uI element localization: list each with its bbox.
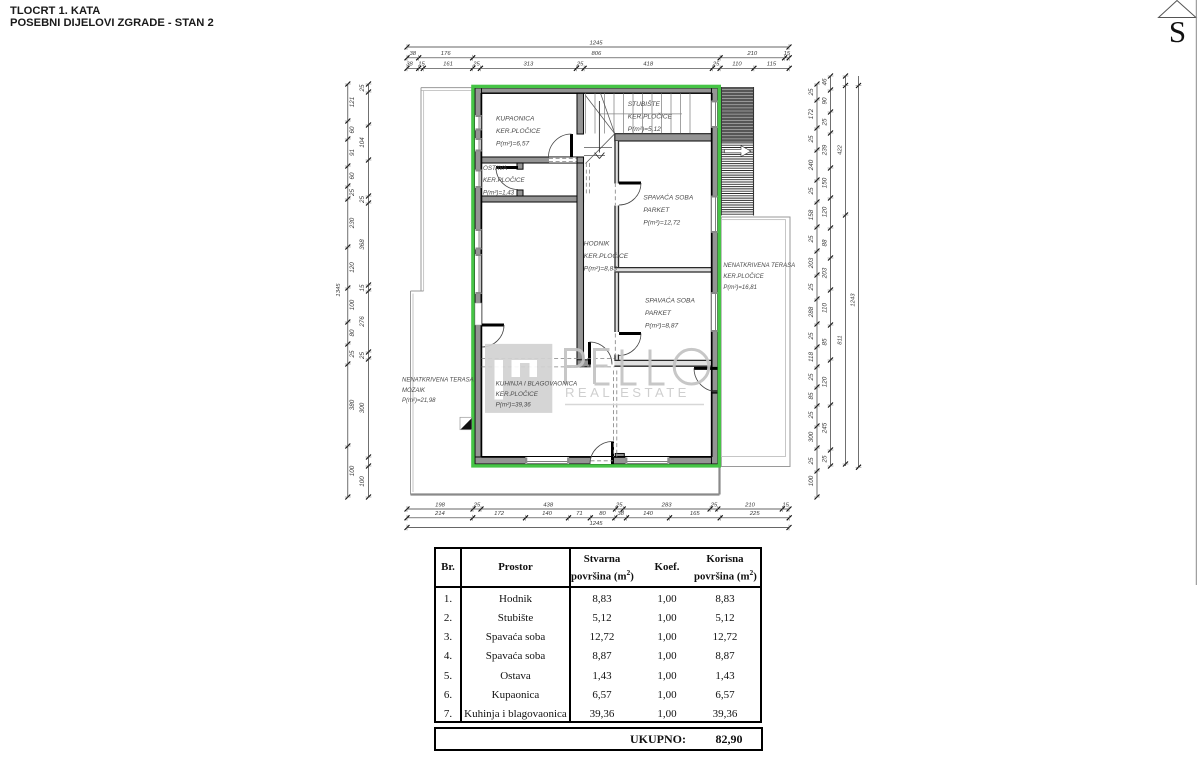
svg-text:172: 172 <box>494 511 505 517</box>
svg-text:176: 176 <box>441 51 452 57</box>
svg-text:91: 91 <box>349 149 356 156</box>
svg-text:85: 85 <box>808 392 815 400</box>
svg-text:25: 25 <box>808 235 815 244</box>
svg-text:110: 110 <box>732 62 742 68</box>
svg-text:25: 25 <box>576 62 584 68</box>
svg-text:438: 438 <box>543 502 554 508</box>
svg-text:276: 276 <box>359 316 366 328</box>
svg-text:15: 15 <box>782 502 789 508</box>
svg-text:25: 25 <box>349 189 356 198</box>
svg-text:25: 25 <box>359 352 366 361</box>
svg-text:15: 15 <box>418 62 425 68</box>
svg-text:88: 88 <box>822 239 829 247</box>
svg-text:283: 283 <box>661 502 673 508</box>
svg-text:165: 165 <box>690 511 701 517</box>
svg-text:P(m²)=5,12: P(m²)=5,12 <box>628 126 661 133</box>
svg-text:380: 380 <box>349 399 356 410</box>
svg-text:80: 80 <box>599 511 606 517</box>
svg-text:KER.PLOČICE: KER.PLOČICE <box>496 126 541 135</box>
svg-text:25: 25 <box>473 502 481 508</box>
svg-text:25: 25 <box>808 88 815 97</box>
svg-text:100: 100 <box>349 299 356 310</box>
svg-text:245: 245 <box>822 422 829 434</box>
svg-text:KER.PLOČICE: KER.PLOČICE <box>584 251 629 260</box>
svg-text:210: 210 <box>744 502 756 508</box>
svg-text:P(m²)=1,43: P(m²)=1,43 <box>483 189 515 196</box>
svg-text:SPAVAĆA SOBA: SPAVAĆA SOBA <box>643 193 693 202</box>
svg-text:806: 806 <box>591 51 602 57</box>
svg-text:811: 811 <box>838 335 844 344</box>
svg-text:140: 140 <box>643 511 654 517</box>
svg-text:P(m²)=8,87: P(m²)=8,87 <box>645 322 678 329</box>
svg-text:SPAVAĆA SOBA: SPAVAĆA SOBA <box>645 296 695 305</box>
svg-text:P(m²)=39,36: P(m²)=39,36 <box>496 402 532 409</box>
svg-text:90: 90 <box>822 97 829 105</box>
svg-text:100: 100 <box>359 476 366 487</box>
svg-text:PARKET: PARKET <box>643 207 670 214</box>
svg-text:300: 300 <box>808 431 815 442</box>
svg-text:300: 300 <box>359 402 366 413</box>
svg-text:161: 161 <box>443 62 453 68</box>
svg-text:25: 25 <box>808 187 815 196</box>
svg-text:368: 368 <box>359 239 366 250</box>
svg-text:15: 15 <box>784 51 791 57</box>
svg-text:HODNIK: HODNIK <box>584 241 610 248</box>
svg-text:25: 25 <box>359 196 366 205</box>
svg-text:1245: 1245 <box>589 40 603 46</box>
svg-text:38: 38 <box>410 51 417 57</box>
svg-text:KER.PLOČICE: KER.PLOČICE <box>628 111 673 120</box>
svg-text:25: 25 <box>808 283 815 292</box>
svg-text:15: 15 <box>359 284 366 292</box>
svg-text:198: 198 <box>435 502 446 508</box>
svg-text:S: S <box>1169 14 1186 49</box>
svg-text:230: 230 <box>349 217 356 229</box>
svg-text:NENATKRIVENA TERASA: NENATKRIVENA TERASA <box>723 263 795 269</box>
svg-text:1245: 1245 <box>589 521 603 527</box>
svg-text:25: 25 <box>808 373 815 382</box>
svg-text:P(m²)=12,72: P(m²)=12,72 <box>643 219 680 226</box>
svg-text:422: 422 <box>838 144 844 155</box>
svg-text:120: 120 <box>822 376 829 387</box>
svg-text:203: 203 <box>808 257 815 269</box>
svg-text:158: 158 <box>808 209 815 220</box>
svg-text:KUPAONICA: KUPAONICA <box>496 116 535 123</box>
svg-text:38: 38 <box>617 511 624 517</box>
svg-text:25: 25 <box>712 62 720 68</box>
svg-text:25: 25 <box>349 350 356 359</box>
svg-text:P(m²)=21,98: P(m²)=21,98 <box>402 398 436 404</box>
svg-text:140: 140 <box>542 511 553 517</box>
svg-text:203: 203 <box>822 267 829 279</box>
svg-text:1345: 1345 <box>336 283 342 297</box>
svg-text:MOZAIK: MOZAIK <box>402 388 426 394</box>
svg-text:120: 120 <box>822 206 829 217</box>
svg-text:P(m²)=6,57: P(m²)=6,57 <box>496 140 529 147</box>
svg-text:150: 150 <box>822 177 829 188</box>
svg-text:1243: 1243 <box>851 293 857 307</box>
svg-text:P(m²)=16,81: P(m²)=16,81 <box>723 285 757 291</box>
svg-text:KUHINJA I BLAGOVAONICA: KUHINJA I BLAGOVAONICA <box>496 381 578 388</box>
svg-text:115: 115 <box>767 62 777 68</box>
svg-text:25: 25 <box>615 502 623 508</box>
svg-text:313: 313 <box>523 62 534 68</box>
svg-text:118: 118 <box>808 351 815 362</box>
svg-text:104: 104 <box>359 137 366 148</box>
svg-text:REAL ESTATE: REAL ESTATE <box>565 385 690 400</box>
svg-text:25: 25 <box>808 332 815 341</box>
svg-text:80: 80 <box>349 329 356 337</box>
svg-text:25: 25 <box>822 118 829 127</box>
svg-text:120: 120 <box>349 262 356 273</box>
svg-text:KER.PLOČICE: KER.PLOČICE <box>496 389 539 398</box>
svg-text:46: 46 <box>822 78 829 86</box>
svg-text:60: 60 <box>349 126 356 134</box>
svg-text:25: 25 <box>808 457 815 466</box>
svg-text:25: 25 <box>710 502 718 508</box>
svg-text:38: 38 <box>406 62 413 68</box>
svg-text:239: 239 <box>822 144 829 156</box>
svg-text:25: 25 <box>472 62 480 68</box>
svg-text:PARKET: PARKET <box>645 310 672 317</box>
svg-text:100: 100 <box>349 465 356 476</box>
svg-text:25: 25 <box>359 84 366 93</box>
svg-text:P(m²)=8,83: P(m²)=8,83 <box>584 265 617 272</box>
svg-text:225: 225 <box>749 511 761 517</box>
svg-text:418: 418 <box>643 62 654 68</box>
svg-text:288: 288 <box>808 306 815 318</box>
svg-text:85: 85 <box>822 338 829 346</box>
svg-text:NENATKRIVENA TERASA: NENATKRIVENA TERASA <box>402 378 474 384</box>
svg-text:60: 60 <box>349 172 356 180</box>
svg-text:121: 121 <box>349 97 356 108</box>
svg-text:210: 210 <box>746 51 758 57</box>
svg-text:OSTAVA: OSTAVA <box>483 165 507 172</box>
svg-text:KER.PLOČICE: KER.PLOČICE <box>483 177 525 184</box>
svg-text:25: 25 <box>822 455 829 464</box>
svg-text:110: 110 <box>822 302 829 313</box>
svg-text:STUBIŠTE: STUBIŠTE <box>628 99 661 108</box>
svg-text:100: 100 <box>808 475 815 486</box>
svg-text:240: 240 <box>808 159 815 171</box>
svg-text:172: 172 <box>808 108 815 119</box>
svg-text:KER.PLOČICE: KER.PLOČICE <box>723 273 764 280</box>
svg-text:25: 25 <box>808 411 815 420</box>
svg-text:25: 25 <box>808 135 815 144</box>
svg-text:214: 214 <box>434 511 446 517</box>
svg-text:71: 71 <box>576 511 583 517</box>
